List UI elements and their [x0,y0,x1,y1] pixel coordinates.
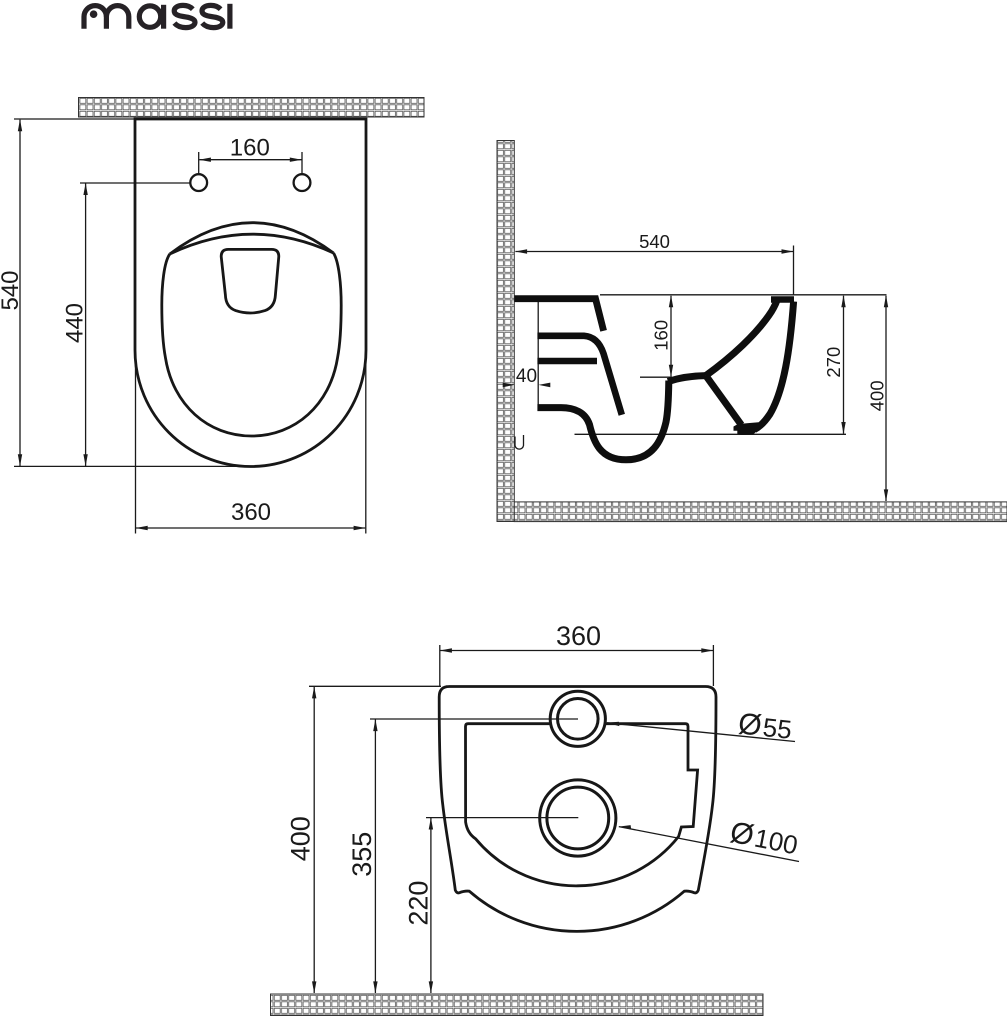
svg-text:355: 355 [347,832,377,877]
svg-text:400: 400 [866,380,887,411]
svg-text:540: 540 [0,270,24,310]
svg-text:160: 160 [650,320,671,351]
svg-text:540: 540 [639,231,670,252]
svg-text:360: 360 [231,499,271,526]
svg-text:40: 40 [516,366,537,387]
svg-text:270: 270 [823,347,844,378]
svg-text:400: 400 [285,816,315,861]
svg-text:360: 360 [556,621,601,651]
svg-text:220: 220 [403,881,433,926]
svg-text:440: 440 [61,303,88,343]
svg-text:Ø55: Ø55 [737,707,794,745]
svg-text:160: 160 [230,135,270,162]
